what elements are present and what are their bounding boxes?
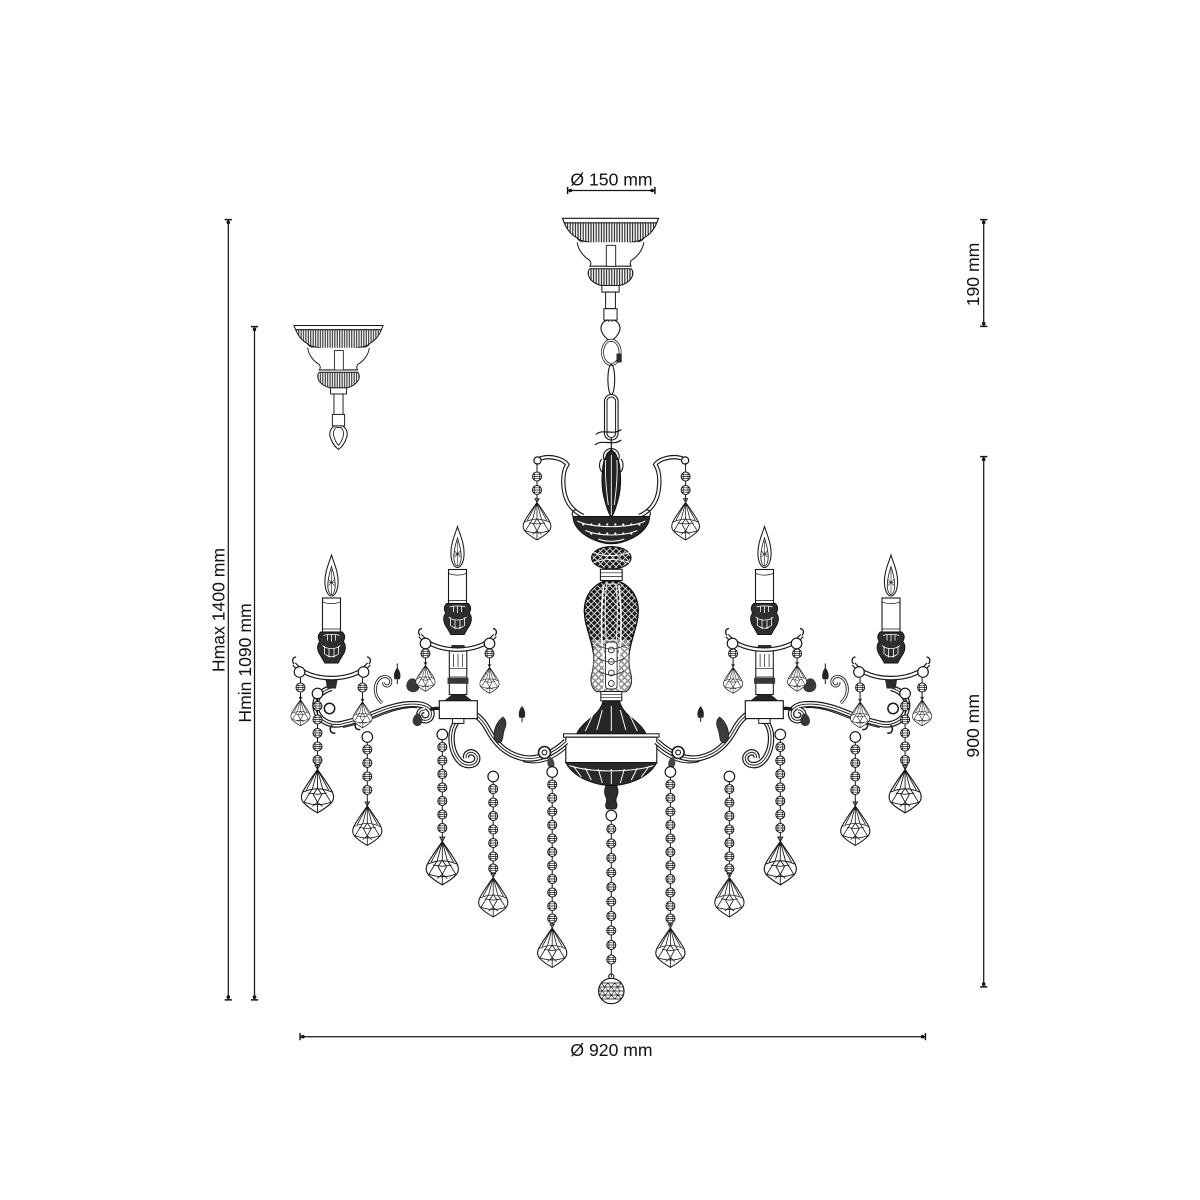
svg-text:Ø 150 mm: Ø 150 mm bbox=[570, 169, 652, 189]
svg-text:900 mm: 900 mm bbox=[963, 694, 983, 758]
svg-text:Ø 920 mm: Ø 920 mm bbox=[570, 1040, 652, 1060]
svg-text:190 mm: 190 mm bbox=[963, 243, 983, 307]
svg-text:Hmin 1090 mm: Hmin 1090 mm bbox=[235, 603, 255, 722]
svg-text:Hmax 1400 mm: Hmax 1400 mm bbox=[209, 548, 229, 672]
